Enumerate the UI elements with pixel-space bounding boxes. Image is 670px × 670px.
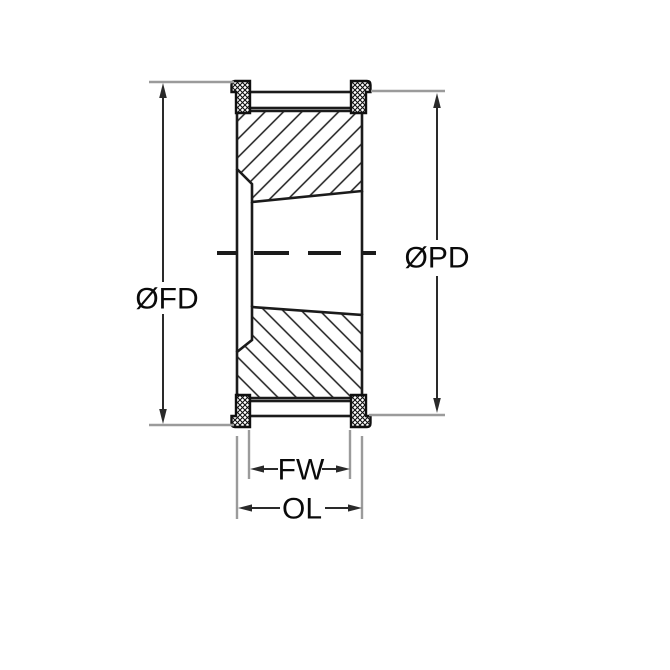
pd-arrow-down-icon	[433, 398, 441, 413]
pd-arrow-up-icon	[433, 93, 441, 108]
flange-cap-bottom-right	[351, 395, 371, 427]
rim-band-top	[249, 92, 352, 108]
flange-cap-top-right	[351, 81, 371, 113]
pulley-body	[217, 81, 376, 427]
fd-arrow-up-icon	[159, 83, 167, 98]
pd-label: ØPD	[404, 242, 469, 275]
ol-arrow-left-icon	[238, 504, 252, 511]
section-hatch-lower	[237, 307, 362, 398]
fw-arrow-left-icon	[250, 465, 264, 472]
ol-arrow-right-icon	[348, 504, 362, 511]
section-hatch-upper	[237, 111, 362, 202]
fd-label: ØFD	[135, 283, 198, 316]
pulley-technical-drawing: ØFD ØPD FW OL	[0, 0, 670, 670]
fw-arrow-right-icon	[336, 465, 350, 472]
drawing-canvas: ØFD ØPD FW OL	[0, 0, 670, 670]
flange-cap-top-left	[232, 81, 251, 113]
dimension-fw: FW	[249, 430, 350, 487]
ol-label: OL	[282, 493, 322, 526]
fw-label: FW	[278, 454, 325, 487]
dimension-pd: ØPD	[369, 91, 470, 415]
rim-band-bottom	[249, 401, 352, 416]
fd-arrow-down-icon	[159, 409, 167, 424]
flange-cap-bottom-left	[232, 395, 251, 427]
